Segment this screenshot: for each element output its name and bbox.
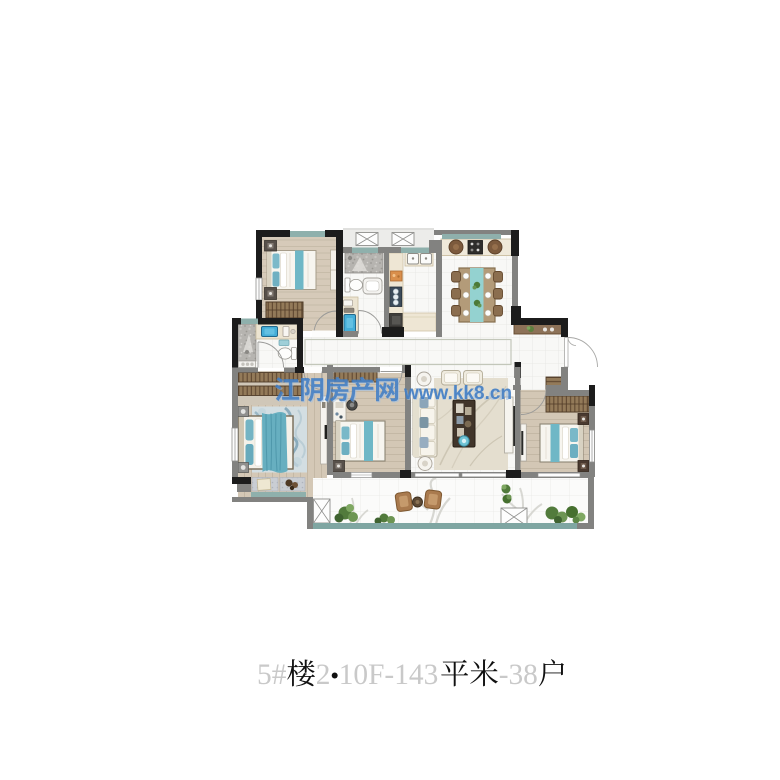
svg-text:-38: -38 bbox=[499, 659, 538, 691]
svg-text:5#: 5# bbox=[257, 659, 287, 691]
svg-text:2: 2 bbox=[316, 659, 331, 691]
svg-text:10F-143: 10F-143 bbox=[339, 659, 439, 691]
svg-text:www.kk8.cn: www.kk8.cn bbox=[403, 383, 512, 404]
